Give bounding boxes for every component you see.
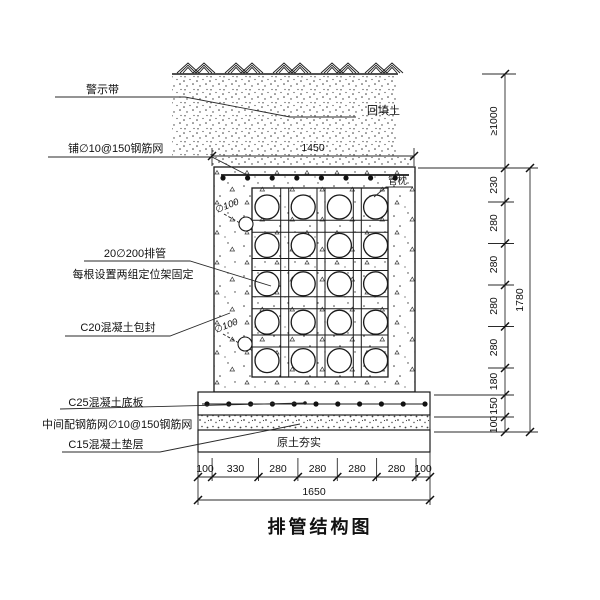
pipe-circle — [364, 310, 388, 334]
dim-right-total: 1780 — [514, 288, 526, 312]
pipe-circle — [255, 349, 279, 373]
pipe-circle — [291, 310, 315, 334]
dim-bottom-seg: 280 — [269, 463, 287, 475]
rebar-dot — [226, 401, 231, 406]
dim-right — [418, 74, 538, 432]
rebar-dot — [379, 401, 384, 406]
pipe-circle — [255, 272, 279, 296]
rebar-dot — [357, 401, 362, 406]
dim-right-seg: 150 — [488, 397, 500, 415]
soil-hatch-symbols — [177, 63, 403, 73]
dim-right-seg: 280 — [488, 214, 500, 232]
pipe-circle — [255, 233, 279, 257]
soil-hatch-stroke — [276, 65, 292, 73]
dim-bottom-seg: 100 — [196, 463, 214, 475]
base-slab-leader-dot — [303, 401, 307, 405]
rebar-dot — [401, 401, 406, 406]
pipe-structure-drawing: 警示带 铺∅10@150钢筋网 回填土 1450 管枕 20∅200排管 每根设… — [0, 0, 600, 600]
dim-right-seg: 280 — [488, 339, 500, 357]
rebar-dot — [343, 175, 348, 180]
pipe-circle — [291, 272, 315, 296]
rebar-dot — [313, 401, 318, 406]
dim-bottom-seg: 100 — [414, 463, 432, 475]
top-mesh-label: 铺∅10@150钢筋网 — [68, 141, 163, 155]
pipe-circle — [255, 195, 279, 219]
cushion-band — [198, 415, 430, 430]
pipe-circle — [291, 195, 315, 219]
rebar-dot — [270, 175, 275, 180]
backfill-fill — [172, 75, 412, 167]
soil-hatch-stroke — [340, 65, 356, 73]
dim-bottom-total: 1650 — [302, 486, 326, 498]
slab-mesh-label: 中间配钢筋网∅10@150钢筋网 — [42, 417, 192, 431]
dim-bottom-seg: 280 — [309, 463, 327, 475]
cushion-label: C15混凝土垫层 — [68, 437, 143, 451]
warning-tape-label: 警示带 — [86, 82, 119, 96]
rebar-dot — [245, 175, 250, 180]
pipe-circle — [364, 233, 388, 257]
dim-right-seg: 100 — [488, 416, 500, 434]
pipe-circle — [327, 349, 351, 373]
dim-bottom-seg: 330 — [227, 463, 245, 475]
dim-right-seg: 230 — [488, 176, 500, 194]
rebar-dot — [292, 401, 297, 406]
pipe-circle — [327, 195, 351, 219]
dim-bottom-seg: 280 — [348, 463, 366, 475]
soil-hatch-stroke — [324, 65, 340, 73]
soil-hatch-stroke — [368, 65, 384, 73]
pipe-circle — [364, 272, 388, 296]
pipe-circle — [255, 310, 279, 334]
pipe-bank-label-line2: 每根设置两组定位架固定 — [73, 267, 194, 281]
rebar-dot — [220, 175, 225, 180]
dim-right-seg: 280 — [488, 256, 500, 274]
base-slab-label: C25混凝土底板 — [68, 395, 143, 409]
soil-hatch-stroke — [244, 65, 260, 73]
encasement-label: C20混凝土包封 — [80, 320, 155, 334]
dim-right-seg: 280 — [488, 297, 500, 315]
pipe-circle — [327, 272, 351, 296]
rebar-dot — [335, 401, 340, 406]
pipe-circle — [364, 195, 388, 219]
pipe-circle — [327, 310, 351, 334]
pipe-circle — [364, 349, 388, 373]
rebar-dot — [368, 175, 373, 180]
pipe-bank-label-line1: 20∅200排管 — [104, 246, 166, 260]
dim-right-seg: 180 — [488, 373, 500, 391]
drawing-title: 排管结构图 — [268, 516, 373, 537]
rebar-dot — [294, 175, 299, 180]
dim-cover-depth: ≥1000 — [488, 106, 500, 135]
rebar-dot — [422, 401, 427, 406]
compacted-soil-label: 原土夯实 — [277, 435, 321, 449]
pipe-circle — [291, 233, 315, 257]
soil-hatch-stroke — [196, 65, 212, 73]
pipe-pillow-label: 管枕 — [388, 175, 408, 187]
soil-hatch-stroke — [292, 65, 308, 73]
dim-bottom-seg: 280 — [388, 463, 406, 475]
pipe-circle — [327, 233, 351, 257]
backfill-label: 回填土 — [367, 103, 400, 117]
soil-hatch-stroke — [180, 65, 196, 73]
soil-hatch-stroke — [228, 65, 244, 73]
soil-hatch-stroke — [384, 65, 400, 73]
drawing-page: 警示带 铺∅10@150钢筋网 回填土 1450 管枕 20∅200排管 每根设… — [0, 0, 600, 600]
rebar-dot — [319, 175, 324, 180]
pipe-circle — [291, 349, 315, 373]
dim-top-width-value: 1450 — [301, 142, 325, 154]
